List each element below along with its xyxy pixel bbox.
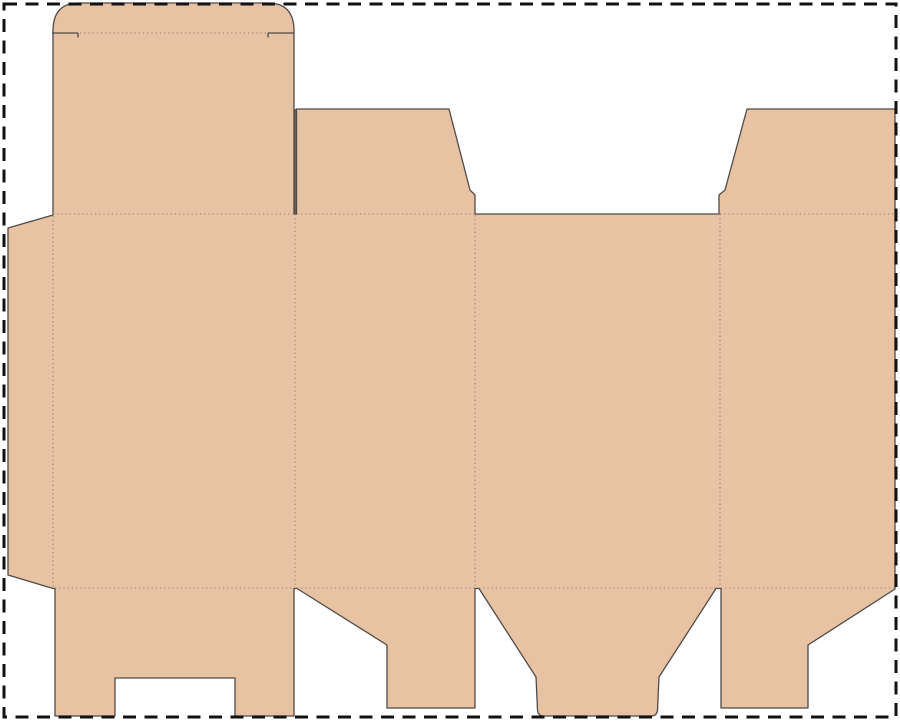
dieline-canvas — [0, 0, 900, 721]
dieline-page — [0, 0, 900, 721]
